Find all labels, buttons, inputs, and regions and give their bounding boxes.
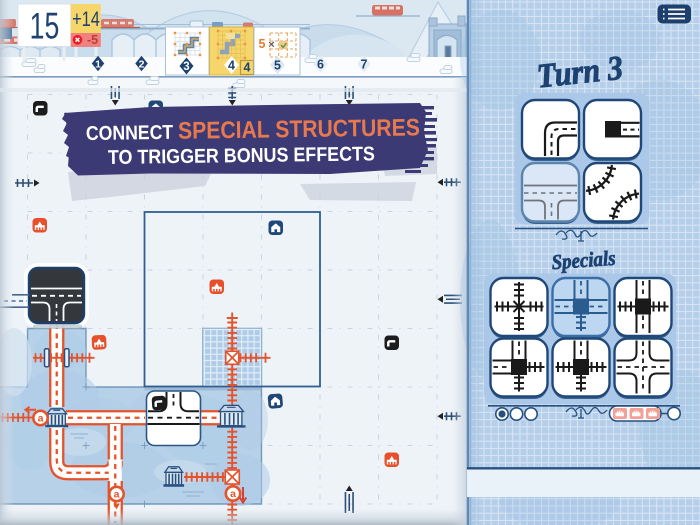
- svg-text:Specials: Specials: [551, 246, 617, 274]
